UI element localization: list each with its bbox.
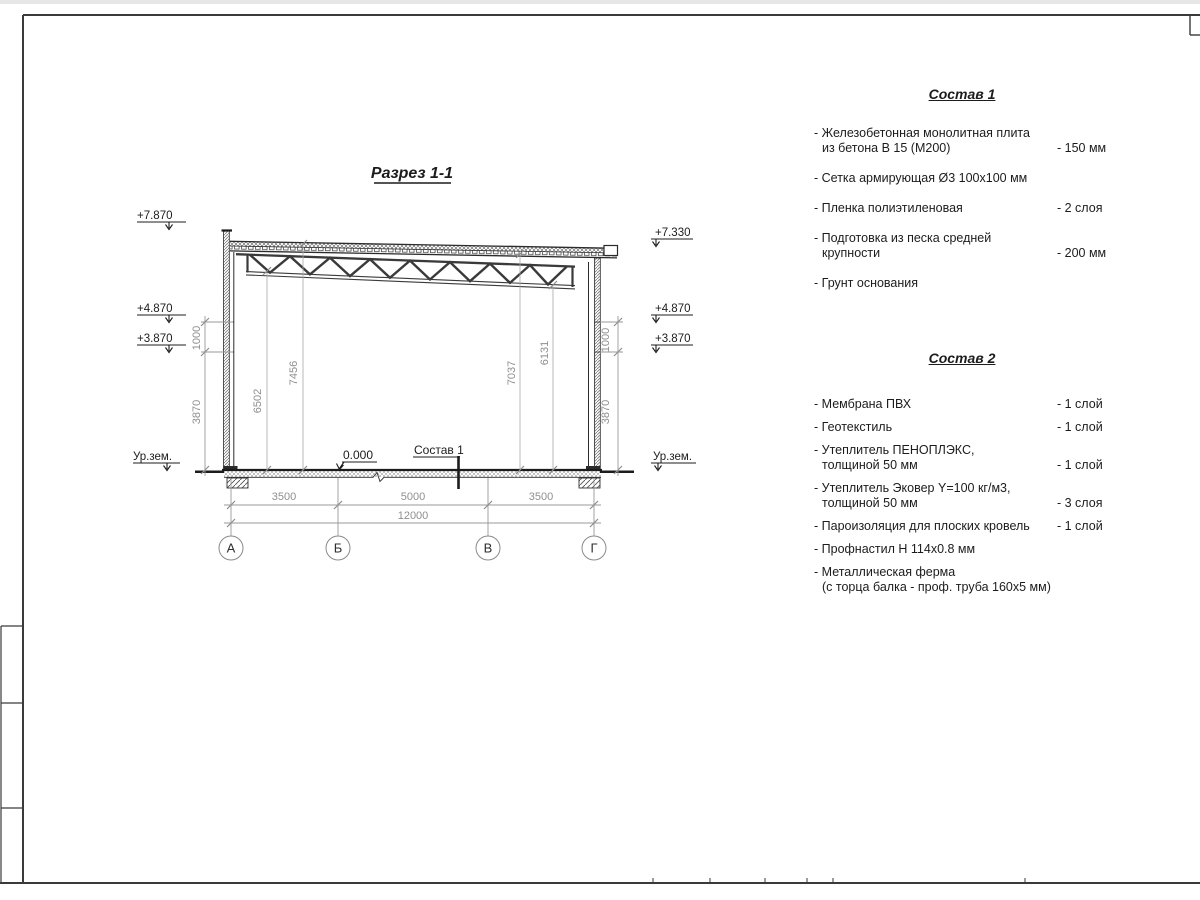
dim-7037: 7037 <box>506 361 518 385</box>
sostav1-items: - Железобетонная монолитная плита из бет… <box>814 126 1110 291</box>
sostav2-items: - Мембрана ПВХ - 1 слой - Геотекстиль - … <box>814 397 1110 595</box>
right-column <box>586 258 600 471</box>
elev-left-low: +3.870 <box>137 333 173 345</box>
material-label-line2: толщиной 50 мм <box>814 496 1057 511</box>
material-item: - Железобетонная монолитная плита из бет… <box>814 126 1110 156</box>
left-column <box>222 231 238 471</box>
elev-left-ground: Ур.зем. <box>133 451 172 463</box>
material-label: - Утеплитель Эковер Y=100 кг/м3, <box>814 481 1057 496</box>
material-value: - 1 слой <box>1057 397 1103 412</box>
scan-edge-strip <box>0 0 1200 4</box>
dim-7456: 7456 <box>288 361 300 385</box>
elevation-marks-left: +7.870 +4.870 +3.870 Ур.зем. <box>133 210 186 471</box>
elev-right-low: +3.870 <box>655 333 691 345</box>
material-label-line2: крупности <box>814 246 1057 261</box>
dim-12000: 12000 <box>398 510 429 522</box>
material-value: - 1 слой <box>1057 519 1103 534</box>
drawing-sheet: Разрез 1-1 <box>0 0 1200 900</box>
axis-g: Г <box>590 541 597 556</box>
dim-6502: 6502 <box>252 389 264 413</box>
material-item: - Металлическая ферма (с торца балка - п… <box>814 565 1110 595</box>
left-margin-boxes <box>1 626 23 883</box>
material-label: - Сетка армирующая Ø3 100x100 мм <box>814 171 1057 186</box>
material-item: - Утеплитель Эковер Y=100 кг/м3, толщино… <box>814 481 1110 511</box>
material-item: - Подготовка из песка средней крупности … <box>814 231 1110 261</box>
material-item: - Геотекстиль - 1 слой <box>814 420 1110 435</box>
elev-right-top: +7.330 <box>655 227 691 239</box>
material-label: - Подготовка из песка средней <box>814 231 1057 246</box>
material-label-line2: из бетона В 15 (М200) <box>814 141 1057 156</box>
material-label: - Пленка полиэтиленовая <box>814 201 1057 216</box>
elev-left-mid: +4.870 <box>137 303 173 315</box>
material-item: - Пароизоляция для плоских кровель - 1 с… <box>814 519 1110 534</box>
material-label: - Металлическая ферма <box>814 565 1057 580</box>
roof-fascia <box>604 246 618 256</box>
elev-right-mid: +4.870 <box>655 303 691 315</box>
material-label: - Пароизоляция для плоских кровель <box>814 519 1057 534</box>
material-item: - Сетка армирующая Ø3 100x100 мм <box>814 171 1110 186</box>
dim-right-3870: 3870 <box>600 400 612 424</box>
sostav1-title: Состав 1 <box>814 86 1110 102</box>
dim-3500-left: 3500 <box>272 491 296 503</box>
top-right-format-box <box>1190 15 1200 35</box>
dim-right-1000: 1000 <box>600 328 612 352</box>
material-item: - Пленка полиэтиленовая - 2 слоя <box>814 201 1110 216</box>
material-label-line2: (с торца балка - проф. труба 160x5 мм) <box>814 580 1057 595</box>
floor-note-label: Состав 1 <box>414 443 464 457</box>
dim-6131: 6131 <box>539 341 551 365</box>
material-label: - Грунт основания <box>814 276 1057 291</box>
sostav1-list: Состав 1 - Железобетонная монолитная пли… <box>814 86 1110 306</box>
material-value: - 2 слоя <box>1057 201 1102 216</box>
material-item: - Грунт основания <box>814 276 1110 291</box>
material-label: - Утеплитель ПЕНОПЛЭКС, <box>814 443 1057 458</box>
material-item: - Мембрана ПВХ - 1 слой <box>814 397 1110 412</box>
material-value: - 200 мм <box>1057 246 1106 261</box>
bottom-dim-lines <box>224 478 601 536</box>
material-label: - Мембрана ПВХ <box>814 397 1057 412</box>
elevation-marks-right: +7.330 +4.870 +3.870 Ур.зем. <box>651 227 696 471</box>
floor-slab <box>222 470 602 482</box>
floor-composition-note: Состав 1 <box>413 443 464 489</box>
elev-left-top: +7.870 <box>137 210 173 222</box>
material-item: - Профнастил Н 114x0.8 мм <box>814 542 1110 557</box>
zero-level-mark: 0.000 <box>337 448 378 470</box>
material-value: - 150 мм <box>1057 141 1106 156</box>
material-value: - 1 слой <box>1057 420 1103 435</box>
roof-truss <box>236 254 575 289</box>
material-value: - 1 слой <box>1057 458 1103 473</box>
foundation-left <box>227 478 248 488</box>
axis-v: В <box>484 541 493 556</box>
dim-left-3870: 3870 <box>191 400 203 424</box>
section-title: Разрез 1-1 <box>371 165 453 182</box>
axis-a: А <box>227 541 236 556</box>
foundation-right <box>579 478 600 488</box>
elev-right-ground: Ур.зем. <box>653 451 692 463</box>
dim-3500-right: 3500 <box>529 491 553 503</box>
dim-5000: 5000 <box>401 491 425 503</box>
material-label: - Железобетонная монолитная плита <box>814 126 1057 141</box>
truss-web-diagonals <box>250 255 567 285</box>
sostav2-list: Состав 2 - Мембрана ПВХ - 1 слой - Геоте… <box>814 350 1110 603</box>
dim-left-1000: 1000 <box>191 326 203 350</box>
truss-bottom-chord <box>246 272 575 286</box>
axis-b: Б <box>334 541 343 556</box>
material-label: - Геотекстиль <box>814 420 1057 435</box>
zero-label: 0.000 <box>343 448 373 462</box>
axis-bubbles <box>219 536 606 560</box>
material-label: - Профнастил Н 114x0.8 мм <box>814 542 1057 557</box>
material-item: - Утеплитель ПЕНОПЛЭКС, толщиной 50 мм -… <box>814 443 1110 473</box>
sostav2-title: Состав 2 <box>814 350 1110 366</box>
material-value: - 3 слоя <box>1057 496 1102 511</box>
material-label-line2: толщиной 50 мм <box>814 458 1057 473</box>
